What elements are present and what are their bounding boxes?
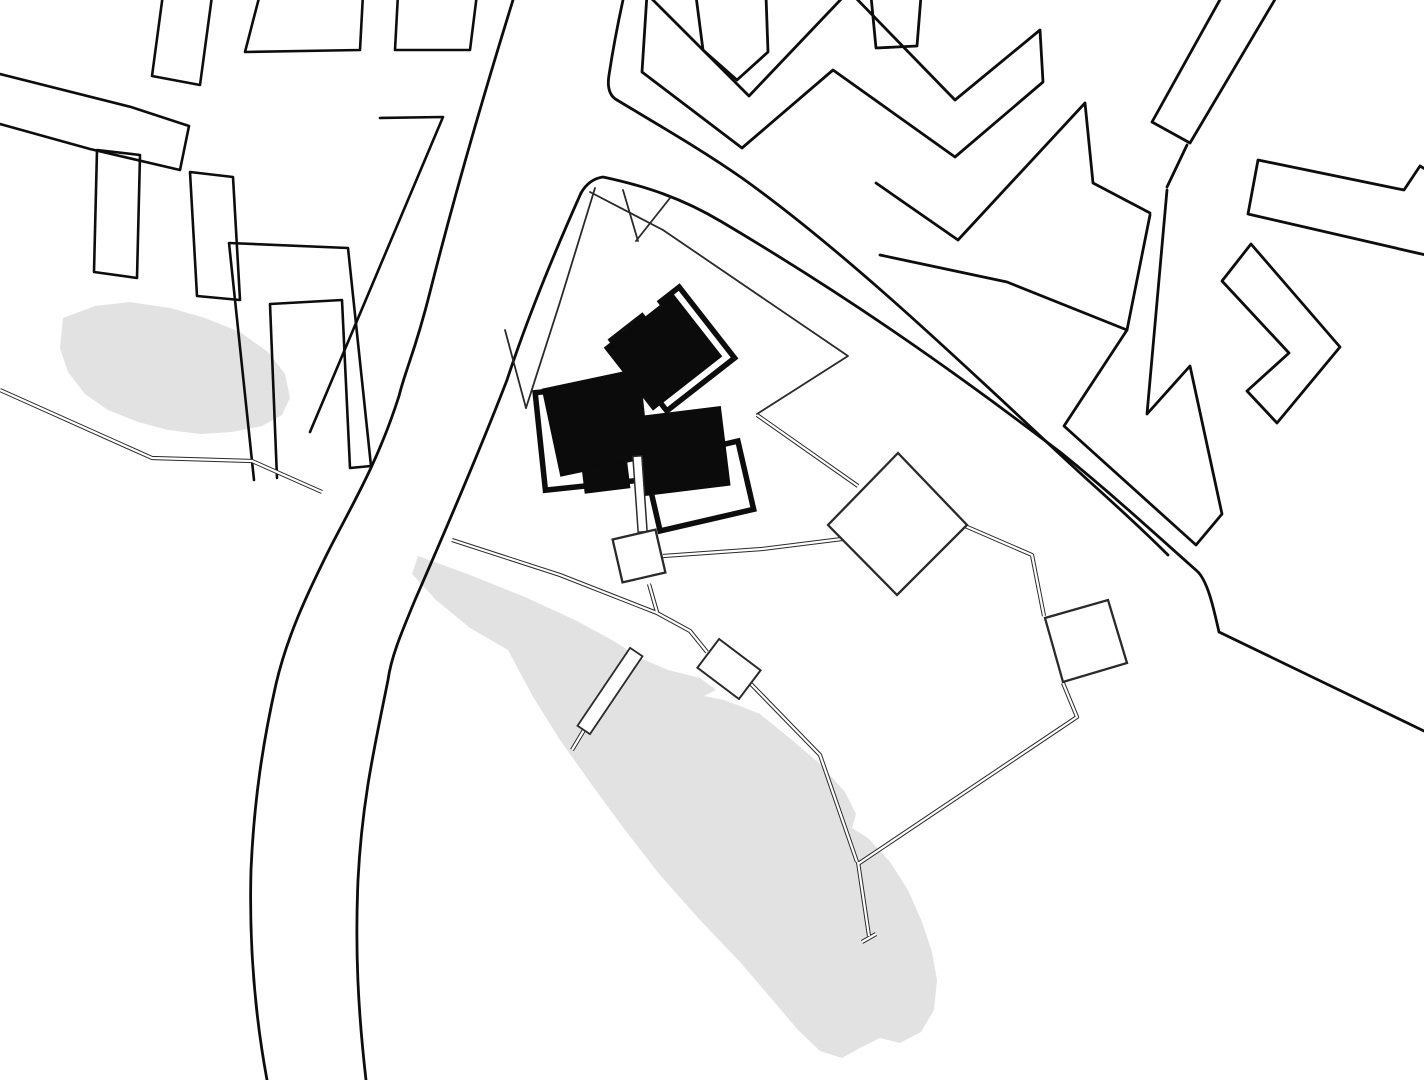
curved-road-west-right-edge-upper xyxy=(608,0,623,100)
path-core xyxy=(649,584,657,612)
northeast-blocks-layer xyxy=(642,0,1424,545)
black-volume-tab xyxy=(582,462,631,493)
water-layer xyxy=(60,302,937,1058)
wide-band-block-topright xyxy=(1248,160,1424,256)
path-core xyxy=(757,415,858,486)
block-top-thin-rect xyxy=(152,0,212,85)
zigzag-band-second-upper xyxy=(876,103,1150,240)
zigzag-block-large xyxy=(642,0,1043,157)
black-volume-southeast xyxy=(635,406,730,496)
path-core xyxy=(965,526,1044,616)
block-top-rect-2 xyxy=(245,0,363,52)
site-boundary-west-inner xyxy=(505,330,526,408)
band-street-upper-edge xyxy=(0,74,189,170)
site-plan-canvas xyxy=(0,0,1424,1080)
path-square2-to-junction xyxy=(858,683,1077,864)
chevron-block-east xyxy=(1222,244,1340,423)
building-layer xyxy=(535,287,753,582)
prong-block-1 xyxy=(94,150,140,278)
east-cluster-spiral-block xyxy=(1064,190,1222,545)
pavilion-below-building-rect xyxy=(613,530,666,583)
v-block-nested xyxy=(696,0,768,80)
plaza-square-east xyxy=(1045,600,1127,682)
black-volume-tab-rect xyxy=(582,462,631,493)
path-diamond-to-square2 xyxy=(965,526,1044,616)
black-volume-southeast-rect xyxy=(635,406,730,496)
path-core xyxy=(858,683,1077,864)
wedge-block-edge xyxy=(310,117,443,432)
path-core xyxy=(663,538,850,556)
pavilion-below-building xyxy=(613,530,666,583)
site-boundary-peak-a xyxy=(590,192,663,230)
block-top-rect-3 xyxy=(395,0,477,50)
narrow-ne-rect-block xyxy=(1152,0,1277,143)
pond-northwest-shape xyxy=(60,302,290,434)
plaza-diamond-large xyxy=(828,453,967,595)
lake-central-shape xyxy=(412,556,937,1058)
east-cluster-connector xyxy=(1167,145,1187,187)
zigzag-band-second-lower xyxy=(880,255,1127,330)
curved-road-west-left-edge xyxy=(251,0,513,1080)
site-plan-drawing xyxy=(0,0,1424,1080)
